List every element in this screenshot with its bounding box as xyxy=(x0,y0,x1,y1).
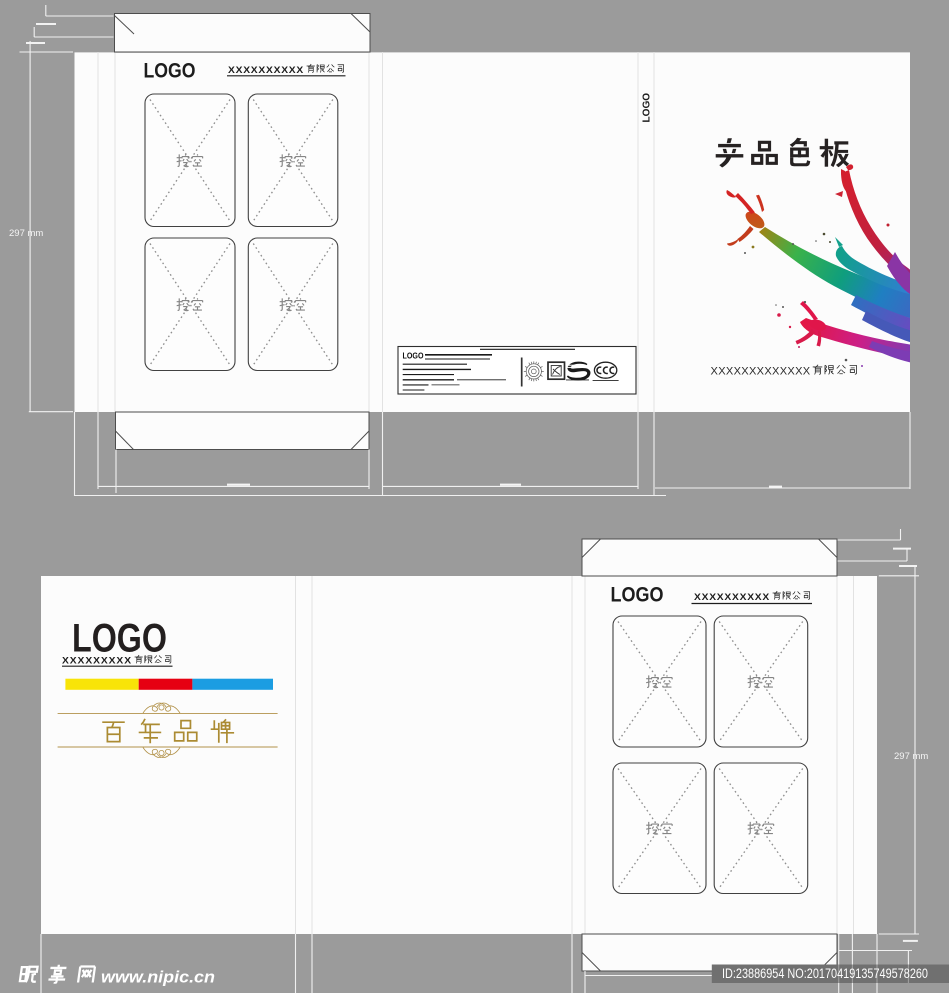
svg-text:XXXXXXXXXX: XXXXXXXXXX xyxy=(694,592,770,603)
svg-text:LOGO: LOGO xyxy=(72,617,167,661)
svg-text:LOGO: LOGO xyxy=(641,93,653,123)
svg-text:297 mm: 297 mm xyxy=(9,228,43,239)
svg-text:XXXXXXXXXX: XXXXXXXXXX xyxy=(228,65,304,76)
svg-text:www.nipic.cn: www.nipic.cn xyxy=(101,968,215,987)
svg-text:LOGO: LOGO xyxy=(403,352,424,361)
svg-text:LOGO: LOGO xyxy=(144,60,196,83)
svg-text:XXXXXXXXX: XXXXXXXXX xyxy=(62,656,132,666)
svg-text:ID:23886954 NO:201704191357495: ID:23886954 NO:20170419135749578260 xyxy=(722,966,928,981)
svg-text:XXXXXXXXXXXXX: XXXXXXXXXXXXX xyxy=(711,366,811,378)
svg-text:297 mm: 297 mm xyxy=(894,751,928,762)
svg-text:LOGO: LOGO xyxy=(611,584,664,607)
